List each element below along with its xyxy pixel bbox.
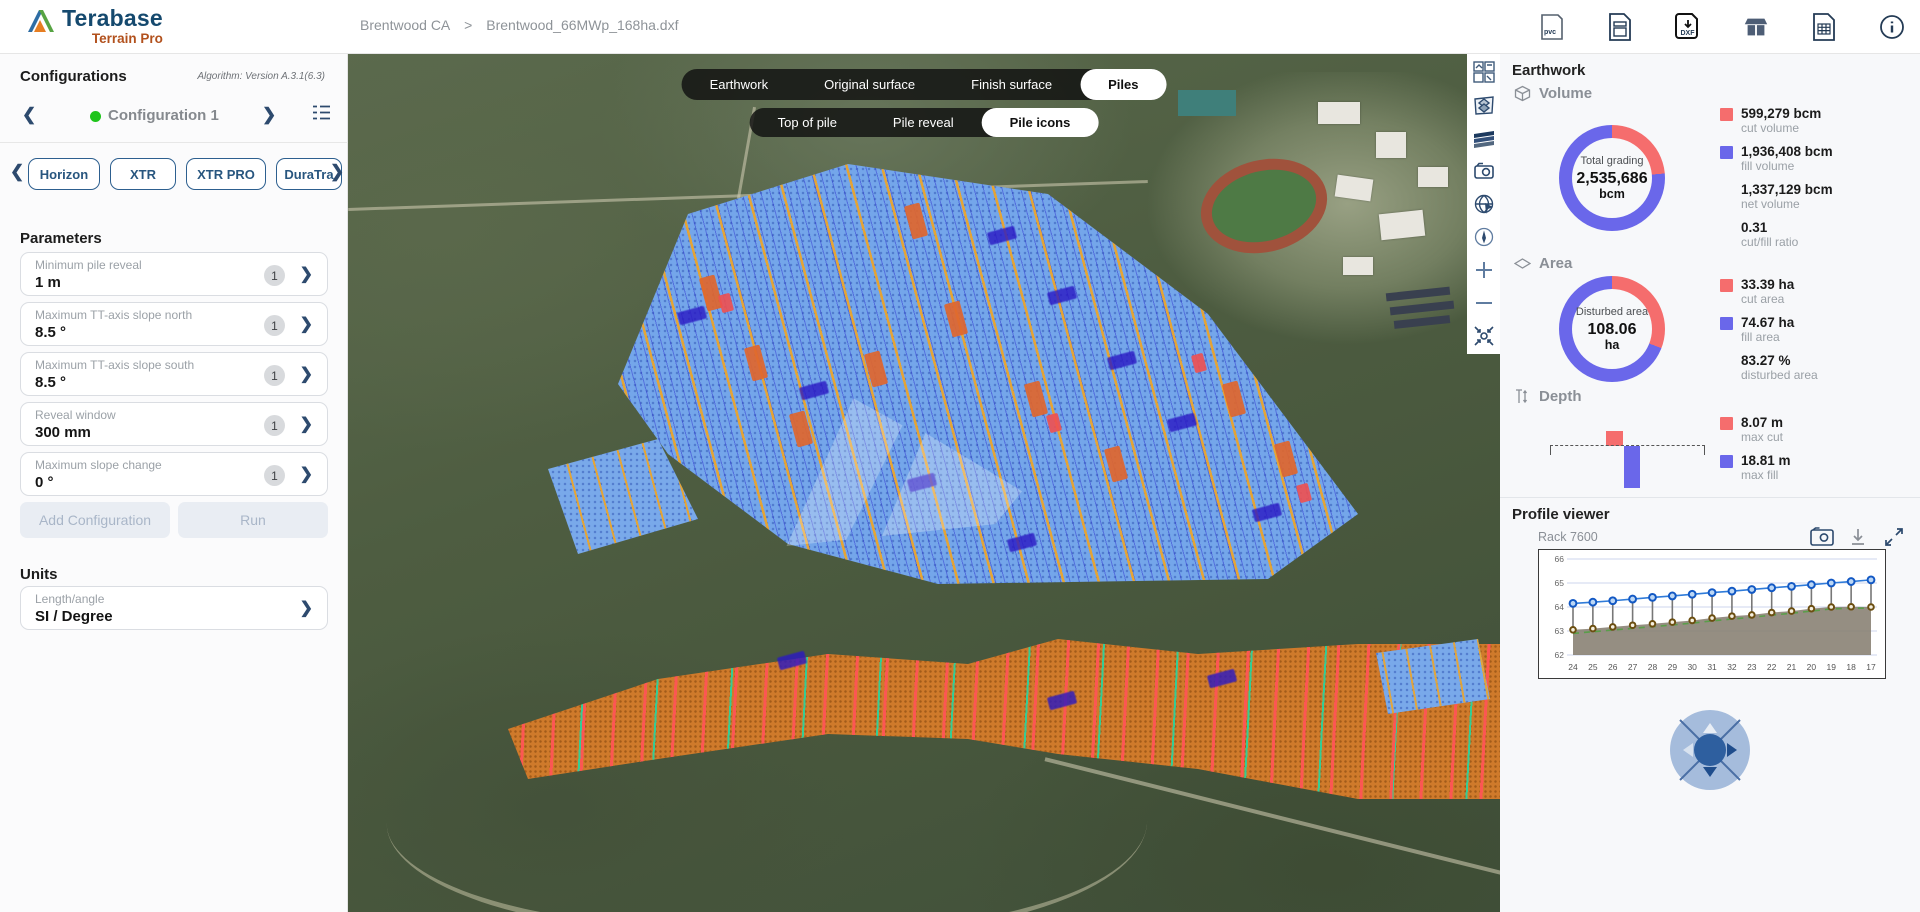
terabase-logo[interactable]: Terabase Terrain Pro	[26, 6, 163, 46]
fit-view-icon[interactable]	[1472, 324, 1496, 348]
map-viewport[interactable]: Earthwork Original surface Finish surfac…	[348, 54, 1500, 912]
param-label: Maximum slope change	[35, 458, 162, 472]
depth-heading-label: Depth	[1539, 388, 1582, 405]
area-stats: Disturbed area 108.06 ha 33.39 ha cut ar…	[1512, 276, 1908, 382]
svg-text:29: 29	[1668, 662, 1678, 672]
layers-map-icon[interactable]	[1472, 93, 1496, 117]
param-max-tt-slope-north[interactable]: Maximum TT-axis slope north 8.5 ° 1 ❯	[20, 302, 328, 346]
chevron-right-icon: ❯	[300, 464, 313, 484]
profile-chart[interactable]: 6665646362242526272829303132232221201918…	[1538, 549, 1886, 679]
cut-fill-ratio-label: cut/fill ratio	[1741, 235, 1798, 249]
cut-area-label: cut area	[1741, 292, 1794, 306]
parameters-title: Parameters	[20, 230, 102, 247]
svg-text:31: 31	[1707, 662, 1717, 672]
svg-text:32: 32	[1727, 662, 1737, 672]
svg-text:28: 28	[1648, 662, 1658, 672]
param-value: 0 °	[35, 474, 54, 491]
prev-configuration-button[interactable]: ❮	[22, 105, 36, 125]
tracker-type-tabs: ❮ Horizon XTR XTR PRO DuraTra ❯	[0, 154, 348, 194]
configurations-sidebar: Configurations Algorithm: Version A.3.1(…	[0, 54, 348, 912]
profile-expand-icon[interactable]	[1882, 527, 1906, 547]
volume-center-value: 2,535,686	[1576, 171, 1647, 187]
tennis-courts	[1178, 90, 1236, 116]
param-minimum-pile-reveal[interactable]: Minimum pile reveal 1 m 1 ❯	[20, 252, 328, 296]
svg-text:64: 64	[1555, 602, 1565, 612]
chevron-right-icon: ❯	[300, 314, 313, 334]
param-label: Maximum TT-axis slope south	[35, 358, 194, 372]
svg-text:63: 63	[1555, 626, 1565, 636]
depth-section-heading: Depth	[1514, 388, 1908, 405]
profile-viewer-title: Profile viewer	[1512, 506, 1908, 523]
screenshot-camera-icon[interactable]	[1472, 159, 1496, 183]
chevron-right-icon: ❯	[300, 264, 313, 284]
cube-icon	[1514, 85, 1531, 102]
cut-volume-value: 599,279 bcm	[1741, 106, 1821, 121]
svg-text:DXF: DXF	[1681, 30, 1696, 37]
volume-section-heading: Volume	[1514, 85, 1908, 102]
max-cut-value: 8.07 m	[1741, 415, 1783, 430]
svg-text:23: 23	[1747, 662, 1757, 672]
table-export-icon[interactable]	[1810, 12, 1838, 42]
panel-divider	[1500, 497, 1920, 498]
next-configuration-button[interactable]: ❯	[262, 105, 276, 125]
param-label: Reveal window	[35, 408, 116, 422]
svg-text:21: 21	[1787, 662, 1797, 672]
max-cut-label: max cut	[1741, 430, 1783, 444]
dxf-download-icon[interactable]: DXF	[1674, 12, 1702, 42]
top-bar: Terabase Terrain Pro Brentwood CA > Bren…	[0, 0, 1920, 54]
param-label: Maximum TT-axis slope north	[35, 308, 192, 322]
area-legend: 33.39 ha cut area 74.67 ha fill area 83.…	[1720, 277, 1818, 382]
max-fill-label: max fill	[1741, 468, 1791, 482]
volume-center-unit: bcm	[1599, 187, 1625, 201]
svg-text:18: 18	[1846, 662, 1856, 672]
zoom-in-icon[interactable]	[1472, 258, 1496, 282]
cut-color-swatch	[1720, 108, 1733, 121]
param-value: 8.5 °	[35, 374, 66, 391]
tab-xtr-pro[interactable]: XTR PRO	[186, 158, 266, 190]
chevron-right-icon: ❯	[300, 364, 313, 384]
fill-color-swatch	[1720, 455, 1733, 468]
pan-center-button[interactable]	[1694, 734, 1726, 766]
svg-text:20: 20	[1807, 662, 1817, 672]
param-value: 300 mm	[35, 424, 91, 441]
svg-text:27: 27	[1628, 662, 1638, 672]
depth-mini-chart	[1512, 409, 1712, 487]
depth-pile-icon	[1514, 388, 1531, 405]
breadcrumb: Brentwood CA > Brentwood_66MWp_168ha.dxf	[360, 17, 688, 33]
breadcrumb-project[interactable]: Brentwood CA	[360, 17, 450, 33]
configuration-status-dot	[90, 111, 101, 122]
cut-color-swatch	[1720, 279, 1733, 292]
units-title: Units	[20, 566, 58, 583]
param-count-badge: 1	[264, 365, 285, 386]
surface-view-tabs: Earthwork Original surface Finish surfac…	[682, 69, 1167, 100]
run-button[interactable]: Run	[178, 502, 328, 538]
cut-volume-label: cut volume	[1741, 121, 1821, 135]
net-volume-label: net volume	[1741, 197, 1833, 211]
svg-text:30: 30	[1687, 662, 1697, 672]
breadcrumb-file[interactable]: Brentwood_66MWp_168ha.dxf	[486, 17, 678, 33]
disturbed-area-label: disturbed area	[1741, 368, 1818, 382]
param-label: Minimum pile reveal	[35, 258, 142, 272]
configuration-switcher: ❮ Configuration 1 ❯	[0, 94, 348, 138]
tracker-tabs-scroll-right[interactable]: ❯	[330, 162, 344, 182]
svg-text:17: 17	[1866, 662, 1876, 672]
earthwork-panel: Earthwork Volume Total grading 2,535,686…	[1500, 54, 1920, 912]
svg-text:62: 62	[1555, 650, 1565, 660]
globe-icon[interactable]	[1472, 192, 1496, 216]
fill-volume-label: fill volume	[1741, 159, 1833, 173]
param-count-badge: 1	[264, 315, 285, 336]
svg-text:19: 19	[1827, 662, 1837, 672]
cut-fill-ratio-value: 0.31	[1741, 220, 1798, 235]
rack-label: Rack 7600	[1538, 530, 1798, 544]
param-count-badge: 1	[264, 415, 285, 436]
fill-color-swatch	[1720, 317, 1733, 330]
zoom-out-icon[interactable]	[1472, 291, 1496, 315]
chevron-right-icon: ❯	[300, 414, 313, 434]
volume-heading-label: Volume	[1539, 85, 1592, 102]
svg-text:26: 26	[1608, 662, 1618, 672]
disturbed-area-value: 83.27 %	[1741, 353, 1818, 368]
sidebar-divider	[0, 142, 348, 143]
profile-viewer-toolbar: Rack 7600	[1538, 527, 1906, 547]
fill-volume-value: 1,936,408 bcm	[1741, 144, 1833, 159]
max-fill-value: 18.81 m	[1741, 453, 1791, 468]
tab-horizon[interactable]: Horizon	[28, 158, 100, 190]
depth-stats: 8.07 m max cut 18.81 m max fill	[1512, 409, 1908, 487]
tab-finish-surface[interactable]: Finish surface	[943, 69, 1080, 100]
max-fill-bar	[1624, 446, 1640, 488]
volume-legend: 599,279 bcm cut volume 1,936,408 bcm fil…	[1720, 106, 1833, 249]
terabase-watermark	[771, 372, 1025, 546]
param-count-badge: 1	[264, 265, 285, 286]
tab-original-surface[interactable]: Original surface	[796, 69, 943, 100]
report-file-icon[interactable]	[1606, 12, 1634, 42]
chevron-right-icon: ❯	[300, 598, 313, 618]
camera-navigation-pad[interactable]	[1512, 707, 1908, 793]
product-name: Terrain Pro	[62, 31, 163, 46]
configurations-title: Configurations	[20, 68, 127, 85]
profile-chart-svg: 6665646362242526272829303132232221201918…	[1539, 550, 1884, 677]
area-center-label: Disturbed area	[1576, 306, 1648, 319]
map-tool-strip	[1467, 54, 1500, 354]
param-max-tt-slope-south[interactable]: Maximum TT-axis slope south 8.5 ° 1 ❯	[20, 352, 328, 396]
tab-top-of-pile[interactable]: Top of pile	[750, 108, 865, 137]
area-donut-chart: Disturbed area 108.06 ha	[1559, 276, 1665, 382]
svg-text:24: 24	[1568, 662, 1578, 672]
param-max-slope-change[interactable]: Maximum slope change 0 ° 1 ❯	[20, 452, 328, 496]
configuration-actions: Add Configuration Run	[20, 502, 328, 538]
param-value: 1 m	[35, 274, 61, 291]
param-reveal-window[interactable]: Reveal window 300 mm 1 ❯	[20, 402, 328, 446]
profile-download-icon[interactable]	[1846, 527, 1870, 547]
breadcrumb-separator: >	[464, 17, 472, 33]
tracker-tabs-scroll-left[interactable]: ❮	[10, 162, 24, 182]
profile-screenshot-icon[interactable]	[1810, 527, 1834, 547]
units-label: Length/angle	[35, 592, 104, 606]
terabase-logo-icon	[26, 6, 56, 36]
pile-display-tabs: Top of pile Pile reveal Pile icons	[750, 108, 1099, 137]
basemap-icon[interactable]	[1472, 60, 1496, 84]
depth-legend: 8.07 m max cut 18.81 m max fill	[1720, 415, 1791, 482]
configuration-name: Configuration 1	[108, 107, 219, 124]
svg-text:25: 25	[1588, 662, 1598, 672]
brand-name: Terabase	[62, 6, 163, 30]
tab-pile-icons[interactable]: Pile icons	[982, 108, 1099, 137]
info-icon[interactable]	[1878, 12, 1906, 42]
area-center-unit: ha	[1605, 338, 1620, 352]
fill-area-value: 74.67 ha	[1741, 315, 1794, 330]
max-cut-bar	[1606, 431, 1623, 446]
volume-donut-chart: Total grading 2,535,686 bcm	[1559, 125, 1665, 231]
tab-pile-reveal[interactable]: Pile reveal	[865, 108, 982, 137]
tab-piles[interactable]: Piles	[1080, 69, 1166, 100]
configuration-list-icon[interactable]	[312, 104, 331, 126]
cut-area-value: 33.39 ha	[1741, 277, 1794, 292]
area-center-value: 108.06	[1588, 322, 1637, 338]
svg-text:22: 22	[1767, 662, 1777, 672]
volume-center-label: Total grading	[1581, 155, 1644, 168]
cut-color-swatch	[1720, 417, 1733, 430]
running-track	[1191, 146, 1337, 266]
svg-text:65: 65	[1555, 578, 1565, 588]
svg-text:pvc: pvc	[1544, 29, 1556, 36]
topbar-actions: pvc DXF	[1538, 0, 1906, 54]
units-value: SI / Degree	[35, 608, 113, 625]
tab-xtr[interactable]: XTR	[110, 158, 176, 190]
svg-text:66: 66	[1555, 554, 1565, 564]
param-value: 8.5 °	[35, 324, 66, 341]
pvc-file-icon[interactable]: pvc	[1538, 12, 1566, 42]
fill-area-label: fill area	[1741, 330, 1794, 344]
area-diamond-icon	[1514, 255, 1531, 272]
tab-earthwork[interactable]: Earthwork	[682, 69, 797, 100]
fill-color-swatch	[1720, 146, 1733, 159]
area-heading-label: Area	[1539, 255, 1572, 272]
surfaces-stack-icon[interactable]	[1472, 126, 1496, 150]
net-volume-value: 1,337,129 bcm	[1741, 182, 1833, 197]
tracker-library-icon[interactable]	[1742, 12, 1770, 42]
units-selector[interactable]: Length/angle SI / Degree ❯	[20, 586, 328, 630]
param-count-badge: 1	[264, 465, 285, 486]
compass-icon[interactable]	[1472, 225, 1496, 249]
add-configuration-button[interactable]: Add Configuration	[20, 502, 170, 538]
algorithm-version: Algorithm: Version A.3.1(6.3)	[197, 71, 325, 82]
volume-stats: Total grading 2,535,686 bcm 599,279 bcm …	[1512, 106, 1908, 249]
panel-title: Earthwork	[1512, 62, 1908, 79]
area-section-heading: Area	[1514, 255, 1908, 272]
